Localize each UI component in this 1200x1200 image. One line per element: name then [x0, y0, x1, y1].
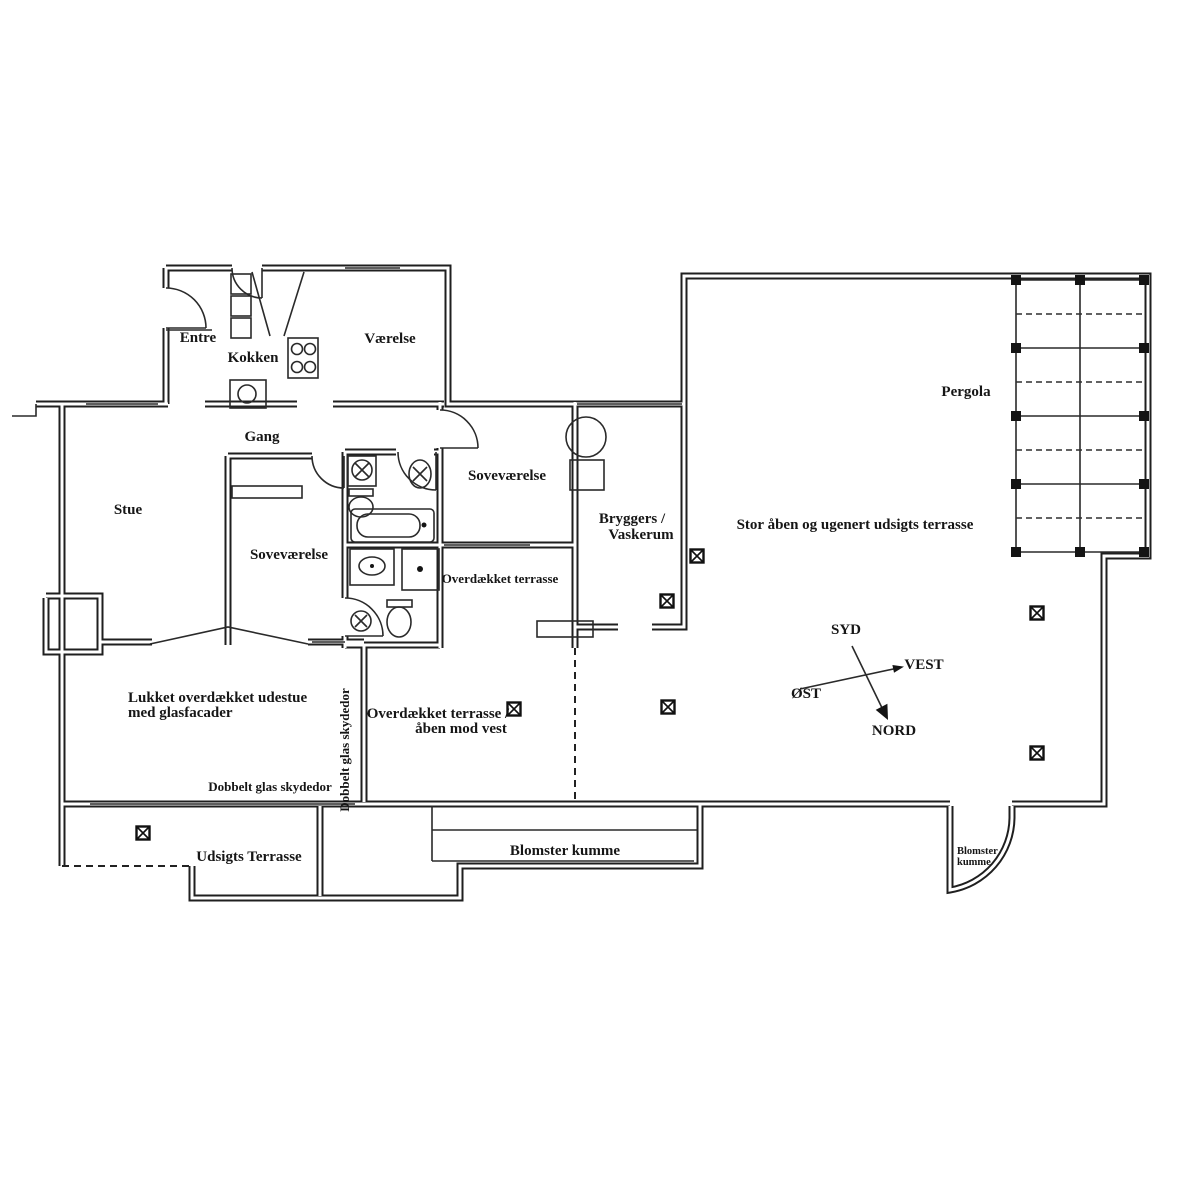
label-stor-terrasse: Stor åben og ugenert udsigts terrasse — [737, 517, 974, 533]
label-dobbelt-glas-horizontal: Dobbelt glas skydedor — [208, 779, 332, 794]
label-terrasse-vest-line2: åben mod vest — [415, 721, 507, 737]
floor-plan-page: SYD VEST ØST NORD Entre Kokken Værelse G… — [0, 0, 1200, 1200]
compass-label-nord: NORD — [872, 723, 916, 739]
floor-plan-drawing: SYD VEST ØST NORD Entre Kokken Værelse G… — [0, 0, 1200, 1200]
label-bryggers-line2: Vaskerum — [608, 527, 674, 543]
shower-drain — [417, 566, 423, 572]
post-marker — [508, 703, 521, 716]
label-vaerelse: Værelse — [364, 331, 416, 347]
post-marker — [1031, 747, 1044, 760]
label-udsigts-terrasse: Udsigts Terrasse — [196, 849, 302, 865]
label-blomster-kumme: Blomster kumme — [510, 843, 620, 859]
post-marker — [662, 701, 675, 714]
label-sovevaerelse-right: Soveværelse — [468, 468, 546, 484]
label-gang: Gang — [244, 429, 280, 445]
label-dobbelt-glas-vertical: Dobbelt glas skydedor — [337, 688, 352, 812]
label-overdaekket-terrasse: Overdækket terrasse — [442, 571, 559, 586]
post-marker — [1031, 607, 1044, 620]
label-entre: Entre — [180, 330, 217, 346]
bathtub-drain — [422, 523, 427, 528]
label-blomster-small-line2: kumme — [957, 857, 991, 868]
post-marker — [691, 550, 704, 563]
washbasin-drain — [370, 564, 374, 568]
compass-label-syd: SYD — [831, 622, 861, 638]
label-kokken: Kokken — [228, 350, 280, 366]
label-sovevaerelse-left: Soveværelse — [250, 547, 328, 563]
paper-background — [0, 0, 1200, 1200]
compass-label-vest: VEST — [904, 657, 943, 673]
label-stue: Stue — [114, 502, 143, 518]
compass-label-ost: ØST — [791, 686, 821, 702]
label-blomster-small-line1: Blomster — [957, 846, 998, 857]
post-marker — [137, 827, 150, 840]
label-bryggers-line1: Bryggers / — [599, 511, 666, 527]
label-udestue-line2: med glasfacader — [128, 705, 233, 721]
label-pergola: Pergola — [941, 384, 991, 400]
label-terrasse-vest-line1: Overdækket terrasse / — [367, 706, 510, 722]
post-marker — [661, 595, 674, 608]
label-udestue-line1: Lukket overdækket udestue — [128, 690, 308, 706]
